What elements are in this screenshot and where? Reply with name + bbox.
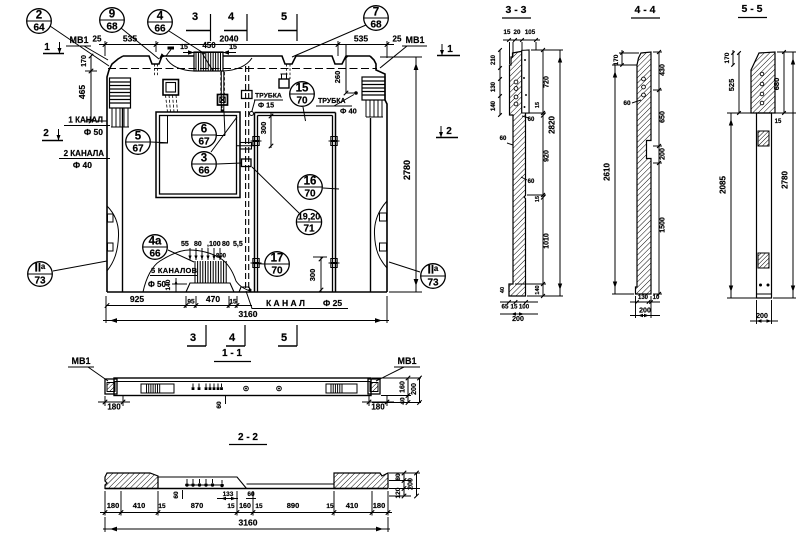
svg-text:2780: 2780 — [402, 160, 412, 180]
svg-text:15: 15 — [229, 44, 237, 51]
svg-text:180: 180 — [107, 501, 120, 510]
svg-text:2: 2 — [446, 126, 452, 137]
svg-text:925: 925 — [130, 294, 144, 304]
svg-text:ТРУБКА: ТРУБКА — [255, 93, 282, 100]
svg-text:68: 68 — [370, 20, 382, 31]
svg-text:2: 2 — [36, 10, 42, 22]
svg-text:140: 140 — [491, 100, 497, 111]
svg-text:4: 4 — [157, 11, 164, 23]
svg-text:67: 67 — [132, 144, 144, 155]
svg-text:66: 66 — [154, 24, 166, 35]
svg-text:300: 300 — [259, 122, 268, 135]
svg-text:60: 60 — [247, 491, 255, 498]
svg-text:19,20: 19,20 — [298, 212, 321, 222]
svg-text:3 - 3: 3 - 3 — [505, 4, 526, 16]
svg-text:200: 200 — [756, 313, 768, 320]
svg-text:15: 15 — [255, 503, 263, 510]
svg-text:200: 200 — [408, 478, 415, 490]
svg-text:1: 1 — [447, 44, 453, 55]
svg-text:80: 80 — [222, 241, 230, 248]
svg-text:15: 15 — [504, 29, 511, 36]
svg-text:65: 65 — [502, 304, 509, 311]
svg-text:68: 68 — [106, 22, 118, 33]
svg-text:25: 25 — [93, 35, 102, 44]
svg-text:15: 15 — [775, 119, 782, 125]
svg-text:180: 180 — [373, 501, 386, 510]
svg-text:465: 465 — [77, 85, 87, 99]
svg-text:3: 3 — [192, 11, 198, 23]
svg-text:170: 170 — [613, 54, 620, 65]
svg-text:60: 60 — [216, 401, 223, 409]
svg-text:67: 67 — [198, 137, 210, 148]
svg-text:IIᵃ: IIᵃ — [35, 263, 46, 275]
svg-text:60: 60 — [500, 136, 507, 142]
svg-text:Ф 50: Ф 50 — [148, 280, 167, 289]
svg-text:680: 680 — [772, 78, 781, 91]
svg-text:410: 410 — [133, 501, 146, 510]
svg-text:920: 920 — [544, 150, 551, 162]
svg-text:Ф 50: Ф 50 — [84, 127, 103, 137]
svg-text:17: 17 — [271, 253, 284, 265]
svg-text:71: 71 — [303, 224, 315, 235]
svg-text:60: 60 — [528, 179, 535, 185]
svg-text:1 КАНАЛ: 1 КАНАЛ — [68, 116, 103, 125]
svg-text:5 КАНАЛОВ: 5 КАНАЛОВ — [151, 266, 198, 275]
svg-text:16: 16 — [304, 176, 317, 188]
svg-text:55: 55 — [181, 241, 189, 248]
svg-text:140: 140 — [165, 279, 172, 290]
svg-text:4: 4 — [228, 11, 235, 23]
svg-text:К А Н А Л: К А Н А Л — [266, 298, 305, 308]
svg-text:2820: 2820 — [548, 116, 557, 134]
svg-text:4a: 4a — [149, 236, 162, 248]
svg-text:2: 2 — [43, 128, 49, 139]
svg-text:105: 105 — [525, 29, 536, 36]
svg-text:2780: 2780 — [781, 171, 790, 189]
svg-text:3: 3 — [201, 153, 207, 165]
svg-text:130: 130 — [638, 295, 649, 301]
svg-text:200: 200 — [660, 148, 667, 160]
svg-text:120: 120 — [395, 487, 402, 498]
svg-text:6: 6 — [201, 124, 207, 136]
svg-text:15: 15 — [326, 503, 334, 510]
svg-text:450: 450 — [202, 41, 216, 50]
svg-text:70: 70 — [296, 96, 308, 107]
svg-text:,100: ,100 — [207, 241, 221, 248]
svg-text:2085: 2085 — [719, 176, 728, 194]
svg-text:470: 470 — [206, 294, 220, 304]
svg-text:160: 160 — [400, 381, 407, 393]
svg-text:210: 210 — [491, 54, 497, 65]
svg-text:МВ1: МВ1 — [397, 356, 416, 366]
svg-text:2610: 2610 — [603, 163, 612, 181]
svg-text:720: 720 — [544, 76, 551, 88]
svg-text:5 - 5: 5 - 5 — [741, 3, 762, 15]
svg-text:890: 890 — [287, 501, 300, 510]
svg-text:Ф 40: Ф 40 — [340, 107, 357, 116]
svg-text:15: 15 — [511, 304, 518, 311]
svg-text:200: 200 — [512, 316, 524, 323]
svg-text:73: 73 — [427, 278, 439, 289]
svg-text:130: 130 — [491, 81, 497, 92]
svg-text:7: 7 — [373, 7, 379, 19]
svg-text:535: 535 — [354, 34, 368, 44]
svg-text:15: 15 — [158, 503, 166, 510]
svg-text:2040: 2040 — [220, 34, 239, 44]
svg-text:133: 133 — [223, 491, 234, 498]
svg-text:Ф 25: Ф 25 — [323, 298, 342, 308]
svg-text:3: 3 — [190, 332, 196, 344]
svg-text:15: 15 — [229, 299, 237, 306]
svg-text:260: 260 — [333, 71, 342, 84]
svg-text:95: 95 — [187, 299, 195, 306]
svg-text:140: 140 — [535, 285, 541, 294]
svg-text:1 - 1: 1 - 1 — [222, 348, 242, 359]
svg-text:60: 60 — [173, 491, 180, 499]
svg-text:15: 15 — [180, 44, 188, 51]
svg-text:70: 70 — [304, 189, 316, 200]
svg-text:64: 64 — [33, 23, 45, 34]
svg-text:180: 180 — [371, 403, 385, 412]
svg-text:60: 60 — [623, 100, 631, 107]
svg-text:160: 160 — [239, 503, 251, 510]
svg-text:70: 70 — [271, 266, 283, 277]
svg-text:180: 180 — [107, 403, 121, 412]
svg-text:2 КАНАЛА: 2 КАНАЛА — [64, 149, 105, 158]
svg-text:9: 9 — [109, 9, 115, 21]
svg-text:Ф 15: Ф 15 — [258, 101, 274, 110]
svg-text:15: 15 — [296, 83, 309, 95]
svg-text:3160: 3160 — [239, 309, 258, 319]
svg-text:73: 73 — [34, 276, 46, 287]
svg-text:5: 5 — [281, 332, 287, 344]
svg-text:МВ1: МВ1 — [405, 35, 424, 45]
svg-text:200: 200 — [639, 308, 651, 315]
svg-text:2 - 2: 2 - 2 — [238, 432, 258, 443]
svg-text:20: 20 — [514, 29, 521, 36]
svg-text:IIᵃ: IIᵃ — [428, 265, 439, 277]
svg-text:25: 25 — [393, 35, 402, 44]
svg-text:5,5: 5,5 — [233, 241, 243, 248]
svg-text:650: 650 — [660, 111, 667, 123]
svg-text:200: 200 — [411, 383, 418, 395]
svg-text:МВ1: МВ1 — [69, 35, 88, 45]
svg-text:100: 100 — [519, 304, 530, 311]
svg-text:1500: 1500 — [660, 217, 667, 233]
svg-text:40: 40 — [500, 287, 506, 293]
svg-text:15: 15 — [535, 196, 541, 202]
svg-text:170: 170 — [724, 52, 731, 63]
svg-text:3160: 3160 — [239, 518, 258, 528]
svg-text:800: 800 — [216, 254, 227, 260]
svg-text:15: 15 — [227, 503, 235, 510]
svg-text:300: 300 — [308, 269, 317, 282]
svg-text:МВ1: МВ1 — [71, 356, 90, 366]
svg-text:170: 170 — [81, 55, 88, 67]
svg-text:66: 66 — [149, 249, 161, 260]
svg-text:5: 5 — [281, 11, 287, 23]
svg-text:870: 870 — [191, 501, 204, 510]
svg-text:5: 5 — [135, 131, 142, 143]
svg-text:1010: 1010 — [544, 233, 551, 249]
svg-text:80: 80 — [395, 473, 402, 481]
svg-text:66: 66 — [198, 166, 210, 177]
svg-text:430: 430 — [660, 64, 667, 76]
svg-text:40: 40 — [400, 397, 407, 405]
svg-text:Ф 40: Ф 40 — [73, 160, 92, 170]
svg-text:4: 4 — [229, 332, 236, 344]
svg-text:410: 410 — [346, 501, 359, 510]
svg-text:10: 10 — [653, 295, 660, 301]
svg-text:525: 525 — [727, 79, 736, 92]
svg-text:15: 15 — [535, 102, 541, 108]
svg-text:80: 80 — [194, 241, 202, 248]
svg-text:1: 1 — [44, 42, 50, 53]
svg-text:4 - 4: 4 - 4 — [634, 4, 655, 16]
svg-text:535: 535 — [123, 34, 137, 44]
